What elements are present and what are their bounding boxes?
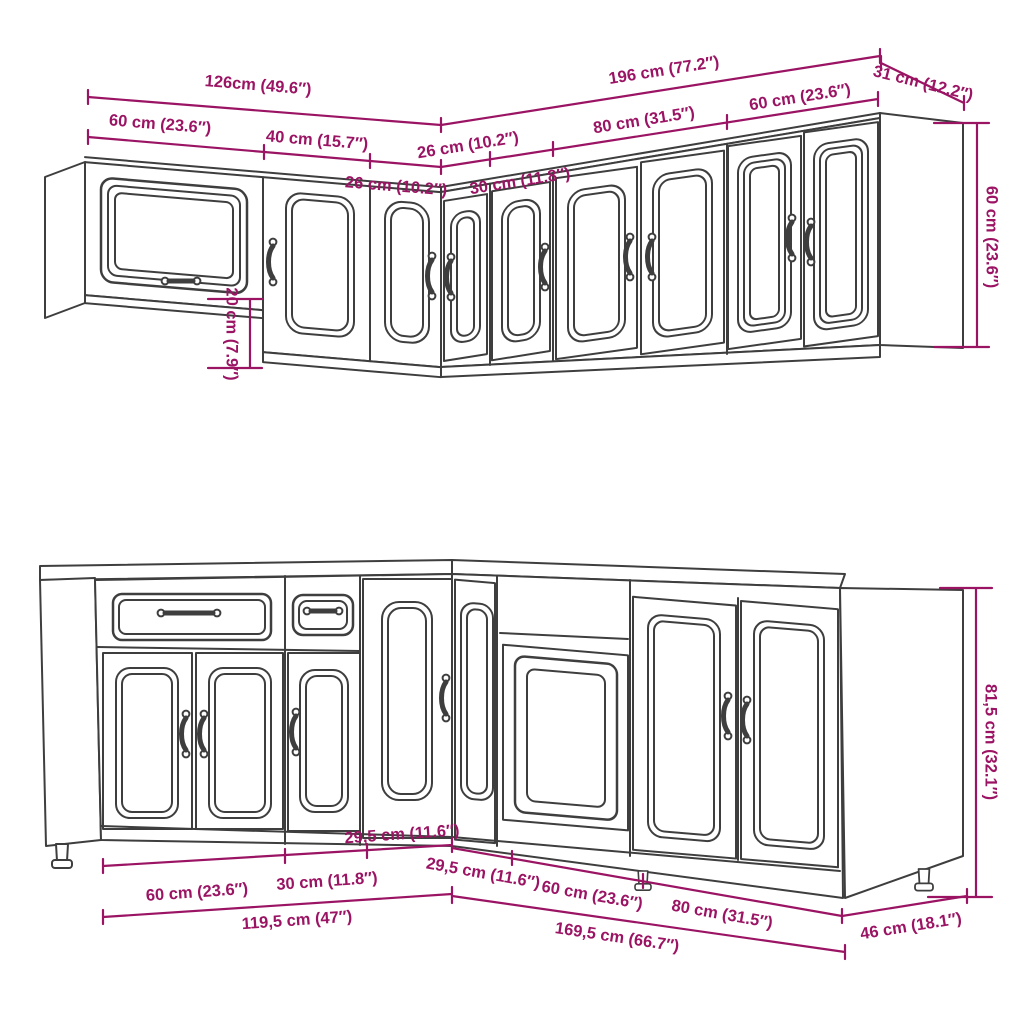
dim-wall-side-depth: 31 cm (12.2″) (871, 62, 975, 104)
base-left-side-panel (40, 578, 101, 846)
dim-wall-40: 40 cm (15.7″) (265, 127, 369, 153)
dim-base-total-left: 119,5 cm (47″) (241, 908, 353, 934)
dim-base-height: 81,5 cm (32.1″) (982, 684, 1000, 800)
dim-base-side-depth: 46 cm (18.1″) (859, 909, 963, 943)
dim-base-60-right: 60 cm (23.6″) (540, 878, 644, 914)
dim-wall-total-left: 126cm (49.6″) (204, 72, 312, 99)
dim-base-total-right: 169,5 cm (66.7″) (554, 919, 681, 955)
dim-base-60-left: 60 cm (23.6″) (145, 880, 248, 905)
base-left-run (95, 574, 452, 846)
dimension-diagram-page: 126cm (49.6″) 196 cm (77.2″) 31 cm (12.2… (0, 0, 1024, 1024)
kitchen-cabinet-dimension-diagram: 126cm (49.6″) 196 cm (77.2″) 31 cm (12.2… (0, 0, 1024, 1024)
dim-wall-80: 80 cm (31.5″) (592, 103, 696, 137)
dim-wall-offset-20: 20 cm (7.9″) (223, 287, 241, 380)
base-cabinets-drawing: 29,5 cm (11.6″) 60 cm (23.6″) 30 cm (11.… (40, 560, 1000, 959)
wall-left-side-panel (45, 162, 85, 318)
dim-base-30: 30 cm (11.8″) (276, 869, 378, 894)
wall-cabinets-drawing: 126cm (49.6″) 196 cm (77.2″) 31 cm (12.2… (45, 49, 1001, 381)
wall-right-run (441, 113, 963, 381)
wall-right-side-panel (880, 113, 963, 348)
dim-wall-60-left: 60 cm (23.6″) (108, 111, 212, 137)
base-right-side-panel (840, 588, 963, 898)
dim-wall-height: 60 cm (23.6″) (983, 186, 1001, 288)
dim-wall-60-right: 60 cm (23.6″) (748, 80, 852, 114)
